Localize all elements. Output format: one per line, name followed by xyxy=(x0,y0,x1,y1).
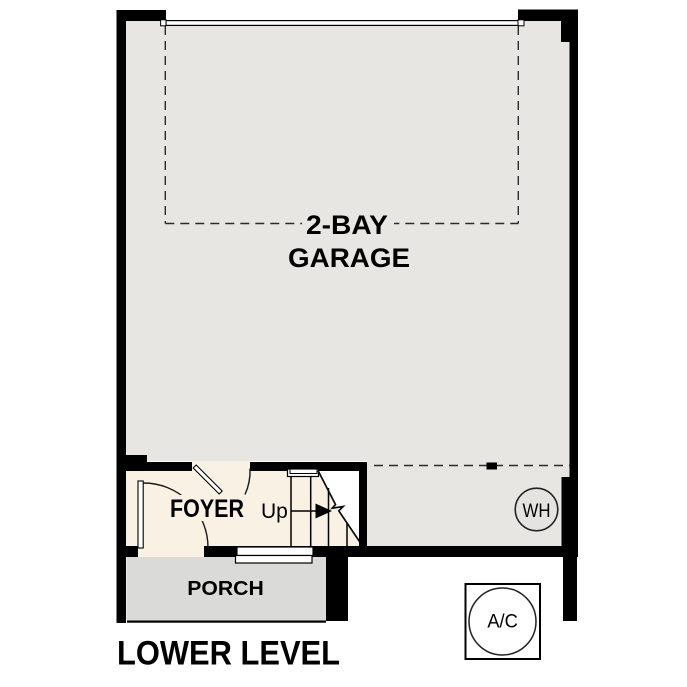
svg-text:GARAGE: GARAGE xyxy=(288,243,410,273)
svg-text:2-BAY: 2-BAY xyxy=(306,210,388,240)
svg-text:PORCH: PORCH xyxy=(187,578,264,600)
svg-text:WH: WH xyxy=(523,501,551,522)
svg-text:LOWER LEVEL: LOWER LEVEL xyxy=(117,635,340,673)
svg-text:FOYER: FOYER xyxy=(170,495,244,523)
svg-text:Up: Up xyxy=(261,500,288,523)
svg-text:A/C: A/C xyxy=(487,612,518,633)
